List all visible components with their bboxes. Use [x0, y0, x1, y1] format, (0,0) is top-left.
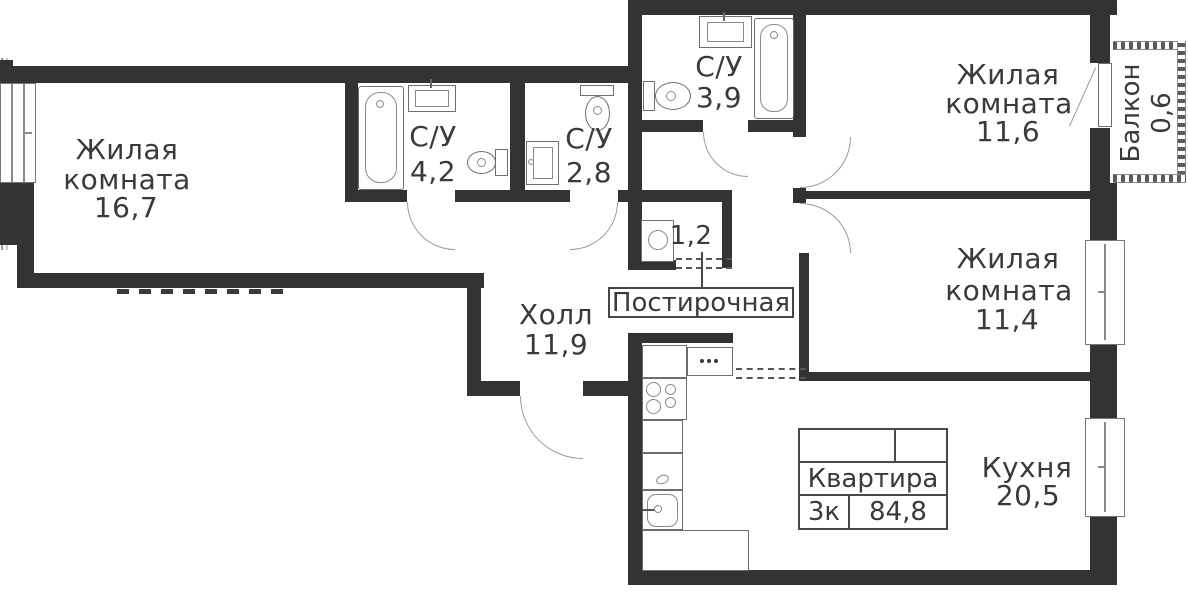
stove-burner [646, 399, 661, 414]
door-arc [800, 203, 851, 253]
kitchen-label: Кухня [982, 454, 1073, 482]
hall-label: Холл [519, 301, 593, 329]
wall [467, 277, 481, 383]
wall [1090, 517, 1117, 585]
living-room-1-label: Жилая [76, 136, 179, 164]
laundry-opening-dashed [676, 258, 732, 269]
bathroom-2-area: 2,8 [566, 159, 612, 187]
laundry-area: 1,2 [670, 223, 713, 249]
info-box-bottom-row: 3к 84,8 [800, 496, 946, 528]
wall [467, 381, 520, 396]
kitchen-counter [642, 345, 687, 378]
window-tick [1098, 466, 1106, 468]
wall [748, 120, 793, 132]
toilet-tank [643, 81, 655, 111]
wall [793, 188, 806, 203]
bathroom-1-label: С/У [409, 123, 457, 151]
living-room-1-area: 16,7 [94, 194, 158, 222]
balcony-name: Балкон [1116, 64, 1147, 163]
window [0, 83, 36, 183]
balcony-door-leaf [1098, 63, 1112, 127]
total-area-cell: 84,8 [850, 496, 946, 528]
window-tick [23, 132, 32, 134]
wall [799, 253, 809, 372]
sink-tap [528, 159, 534, 165]
living-room-3-label: Жилая [957, 245, 1060, 273]
kitchen-counter [642, 420, 683, 453]
toilet-detail [666, 91, 676, 101]
living-room-2-area: 11,6 [976, 118, 1040, 146]
wall [806, 191, 1090, 199]
bathroom-3-area: 3,9 [696, 84, 742, 112]
toilet-detail [477, 158, 486, 167]
cabinet-dot [707, 359, 711, 363]
radiator-dashes [117, 289, 289, 294]
laundry-callout-text: Постирочная [612, 288, 790, 318]
kitchen-area: 20,5 [996, 482, 1060, 510]
door-arc [407, 202, 455, 250]
wall [1090, 128, 1110, 183]
apartment-info-box: Квартира 3к 84,8 [798, 428, 948, 530]
info-box-title-row: Квартира [800, 463, 946, 496]
stove-burner [646, 382, 661, 397]
door-arc [703, 132, 748, 177]
window-glass-line [11, 84, 13, 182]
bathroom-1-area: 4,2 [410, 158, 456, 186]
wall [455, 190, 570, 202]
living-room-2-label: Жилая [957, 61, 1060, 89]
wall [510, 83, 525, 195]
apartment-title: Квартира [808, 464, 939, 494]
toilet-tank [580, 85, 614, 96]
balcony-label: Балкон 0,6 [1116, 64, 1178, 163]
toilet-tank [495, 149, 508, 176]
balcony-railing [1177, 41, 1186, 183]
sink-basin [415, 90, 449, 107]
sink-basin [533, 147, 553, 179]
kitchen-sink-tap-dot [654, 505, 662, 513]
living-room-2-label: комната [945, 90, 1073, 118]
living-room-3-area: 11,4 [975, 306, 1039, 334]
total-area: 84,8 [869, 497, 927, 527]
wall [628, 0, 642, 270]
wall [628, 333, 733, 343]
callout-leader-line [701, 252, 703, 288]
kitchen-counter [642, 530, 749, 571]
sink-tap [723, 12, 725, 21]
cabinet-dot [700, 359, 704, 363]
wall [628, 333, 642, 585]
bathtub-drain [376, 100, 384, 108]
wall [799, 372, 1092, 381]
window [1085, 418, 1125, 517]
entrance-door-arc [520, 396, 583, 459]
floor-plan: Жилая комната 16,7 С/У 4,2 С/У 2,8 С/У 3… [0, 0, 1188, 600]
wall [1090, 15, 1110, 63]
living-room-1-label: комната [63, 166, 191, 194]
balcony-door-swing [1069, 68, 1096, 127]
washing-machine-door [648, 230, 668, 250]
wall [1090, 183, 1117, 240]
rooms-count-cell: 3к [800, 496, 850, 528]
wall [793, 15, 806, 137]
bathtub-drain [770, 31, 778, 39]
living-room-3-label: комната [945, 277, 1073, 305]
balcony-railing [1113, 174, 1186, 183]
bathroom-2-label: С/У [565, 125, 613, 153]
wall [1090, 345, 1117, 418]
window-tick [1098, 291, 1106, 293]
wall [345, 83, 358, 195]
stove-burner [665, 384, 676, 395]
wall [583, 381, 628, 396]
window [1085, 240, 1125, 345]
info-box-top-row [800, 430, 946, 463]
sink-basin [707, 22, 744, 42]
wall [642, 120, 703, 132]
info-box-top-right-cell [894, 430, 946, 461]
kitchen-opening-dashed [736, 368, 806, 379]
stove-burner [665, 397, 676, 408]
laundry-callout-box: Постирочная [608, 287, 794, 318]
wall [345, 190, 407, 202]
door-arc [800, 137, 851, 188]
sink-tap [430, 79, 432, 88]
door-arc [570, 202, 618, 250]
rooms-count: 3к [808, 497, 840, 527]
bathroom-3-label: С/У [695, 53, 743, 81]
cabinet-dot [714, 359, 718, 363]
wall [17, 273, 484, 288]
wall [0, 60, 13, 85]
kitchen-counter [642, 453, 683, 490]
wall [0, 183, 34, 245]
wall [10, 66, 642, 83]
wall [628, 570, 1110, 585]
toilet-detail [593, 106, 602, 115]
balcony-railing [1113, 41, 1186, 50]
info-box-top-left-cell [800, 430, 894, 461]
wall [628, 0, 1117, 15]
hall-area: 11,9 [524, 331, 588, 359]
balcony-area: 0,6 [1147, 64, 1178, 163]
